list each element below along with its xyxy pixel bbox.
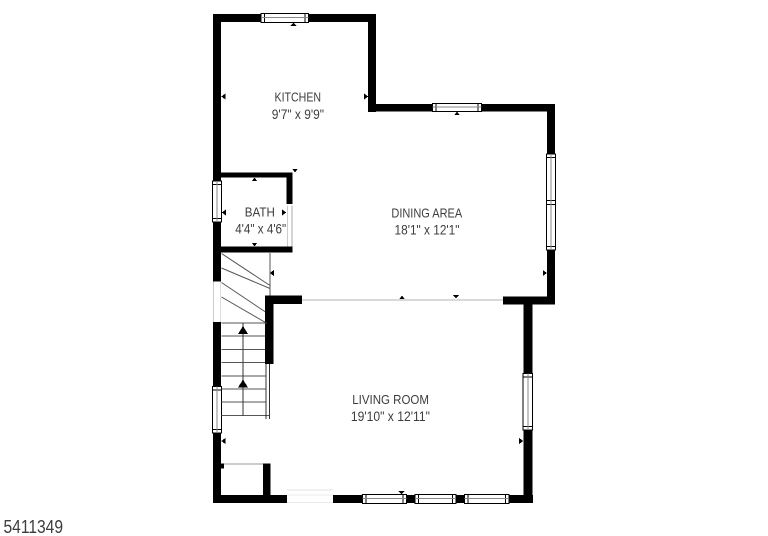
svg-text:LIVING ROOM: LIVING ROOM (352, 393, 429, 407)
svg-text:BATH: BATH (245, 205, 275, 219)
svg-text:18'1" x 12'1": 18'1" x 12'1" (395, 222, 460, 237)
svg-text:4'4" x 4'6": 4'4" x 4'6" (235, 222, 286, 237)
svg-text:9'7" x 9'9": 9'7" x 9'9" (272, 107, 324, 122)
svg-text:DINING AREA: DINING AREA (391, 207, 462, 221)
svg-text:19'10" x 12'11": 19'10" x 12'11" (351, 409, 430, 424)
svg-text:KITCHEN: KITCHEN (275, 91, 322, 105)
svg-text:5411349: 5411349 (4, 516, 64, 536)
